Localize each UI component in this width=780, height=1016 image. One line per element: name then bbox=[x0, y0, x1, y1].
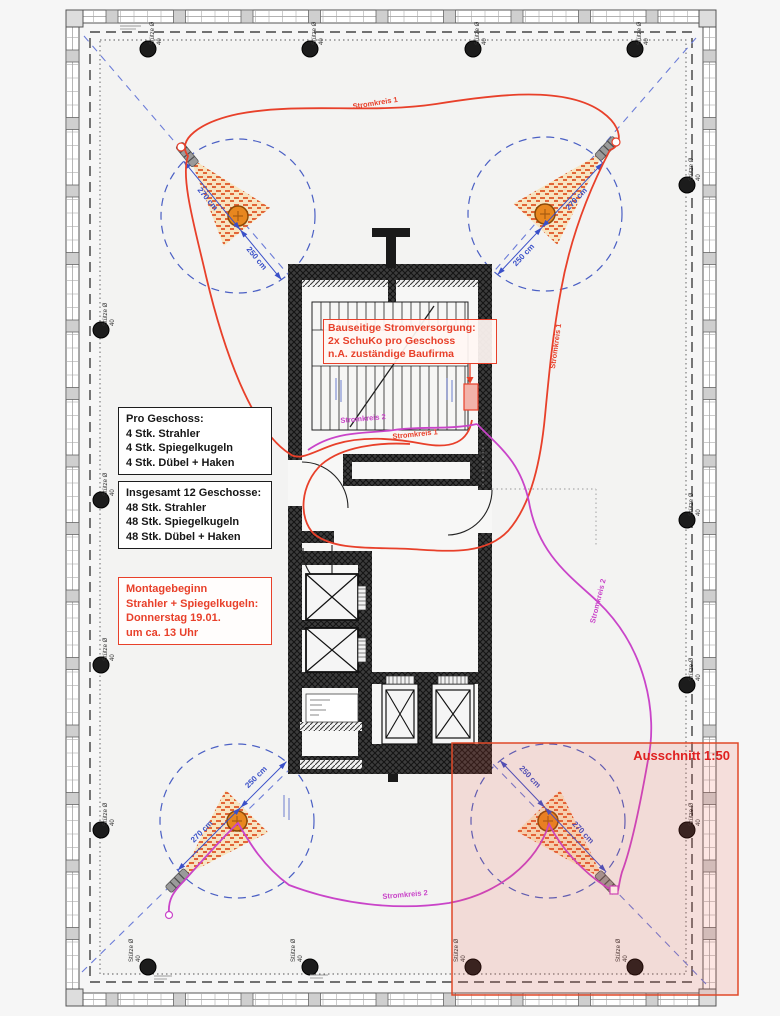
facade-corner bbox=[699, 10, 716, 27]
column-label: Stütze Ø bbox=[475, 21, 481, 45]
facade-corner bbox=[66, 989, 83, 1006]
facade-mullion bbox=[66, 455, 79, 467]
facade-mullion bbox=[703, 50, 716, 62]
facade-mullion bbox=[703, 253, 716, 265]
elevator-shaft bbox=[382, 684, 418, 744]
facade-mullion bbox=[66, 50, 79, 62]
facade-mullion bbox=[174, 10, 186, 23]
column-label: Stütze Ø bbox=[103, 802, 109, 826]
elevator-shaft bbox=[306, 574, 358, 620]
detail-view-overlay bbox=[452, 743, 738, 995]
per-floor-equipment-box: Pro Geschoss: 4 Stk. Strahler 4 Stk. Spi… bbox=[118, 407, 272, 475]
box-line: 48 Stk. Spiegelkugeln bbox=[126, 515, 264, 530]
facade-mullion bbox=[66, 523, 79, 535]
facade-mullion bbox=[703, 590, 716, 602]
facade-mullion bbox=[703, 185, 716, 197]
facade-mullion bbox=[66, 725, 79, 737]
note-line: n.A. zuständige Baufirma bbox=[328, 348, 492, 361]
facade-mullion bbox=[703, 658, 716, 670]
facade-mullion bbox=[241, 993, 253, 1006]
column-label: Stütze Ø bbox=[689, 657, 695, 681]
note-line: Bauseitige Stromversorgung: bbox=[328, 322, 492, 335]
core-stamp-box bbox=[306, 694, 358, 722]
column-label: 40 bbox=[136, 955, 142, 962]
facade-mullion bbox=[309, 10, 321, 23]
box-line: 4 Stk. Dübel + Haken bbox=[126, 456, 264, 471]
facade-mullion bbox=[703, 320, 716, 332]
column-label: 40 bbox=[110, 319, 116, 326]
total-equipment-box: Insgesamt 12 Geschosse: 48 Stk. Strahler… bbox=[118, 481, 272, 549]
box-line: 4 Stk. Strahler bbox=[126, 427, 264, 442]
facade-mullion bbox=[444, 10, 456, 23]
facade-mullion bbox=[66, 590, 79, 602]
column-label: Stütze Ø bbox=[150, 21, 156, 45]
column-label: 40 bbox=[110, 489, 116, 496]
facade-mullion bbox=[66, 253, 79, 265]
box-line: um ca. 13 Uhr bbox=[126, 626, 264, 641]
box-line: Montagebeginn bbox=[126, 582, 264, 597]
facade-corner bbox=[66, 10, 83, 27]
column-label: 40 bbox=[696, 174, 702, 181]
floor-plan-canvas: 270 cm250 cm270 cm250 cm270 cm250 cm270 … bbox=[0, 0, 780, 1016]
column-label: 40 bbox=[298, 955, 304, 962]
facade-mullion bbox=[376, 10, 388, 23]
montage-schedule-box: Montagebeginn Strahler + Spiegelkugeln: … bbox=[118, 577, 272, 645]
column-label: Stütze Ø bbox=[689, 492, 695, 516]
column-label: 40 bbox=[696, 674, 702, 681]
elevator-shaft bbox=[432, 684, 474, 744]
column-label: Stütze Ø bbox=[103, 302, 109, 326]
elevator-shaft bbox=[306, 628, 358, 672]
column-label: 40 bbox=[157, 38, 163, 45]
facade-mullion bbox=[66, 860, 79, 872]
column-label: Stütze Ø bbox=[312, 21, 318, 45]
facade-mullion bbox=[376, 993, 388, 1006]
facade-mullion bbox=[106, 993, 118, 1006]
facade-mullion bbox=[106, 10, 118, 23]
column-label: 40 bbox=[319, 38, 325, 45]
facade-mullion bbox=[703, 388, 716, 400]
column-label: Stütze Ø bbox=[689, 157, 695, 181]
facade-mullion bbox=[174, 993, 186, 1006]
cable-node bbox=[612, 138, 620, 146]
column-label: 40 bbox=[644, 38, 650, 45]
column-label: 40 bbox=[110, 819, 116, 826]
floor-plan-drawing: 270 cm250 cm270 cm250 cm270 cm250 cm270 … bbox=[0, 0, 780, 1016]
cable-node bbox=[166, 912, 173, 919]
box-line: Strahler + Spiegelkugeln: bbox=[126, 597, 264, 612]
box-line: 48 Stk. Dübel + Haken bbox=[126, 530, 264, 545]
facade-mullion bbox=[703, 523, 716, 535]
facade-mullion bbox=[511, 10, 523, 23]
facade-mullion bbox=[241, 10, 253, 23]
facade-mullion bbox=[66, 388, 79, 400]
box-line: 4 Stk. Spiegelkugeln bbox=[126, 441, 264, 456]
facade-mullion bbox=[66, 185, 79, 197]
facade-mullion bbox=[646, 10, 658, 23]
box-title: Pro Geschoss: bbox=[126, 412, 264, 427]
column-label: 40 bbox=[110, 654, 116, 661]
column-label: Stütze Ø bbox=[103, 472, 109, 496]
facade-mullion bbox=[66, 658, 79, 670]
column-label: Stütze Ø bbox=[129, 938, 135, 962]
column-label: Stütze Ø bbox=[291, 938, 297, 962]
schuko-socket bbox=[464, 384, 478, 410]
facade-mullion bbox=[703, 725, 716, 737]
column-label: 40 bbox=[482, 38, 488, 45]
facade-mullion bbox=[579, 10, 591, 23]
box-title: Insgesamt 12 Geschosse: bbox=[126, 486, 264, 501]
cable-node bbox=[177, 143, 185, 151]
power-supply-note: Bauseitige Stromversorgung: 2x SchuKo pr… bbox=[323, 319, 497, 364]
facade-mullion bbox=[66, 320, 79, 332]
facade-mullion bbox=[66, 118, 79, 130]
facade-mullion bbox=[309, 993, 321, 1006]
facade-mullion bbox=[66, 928, 79, 940]
note-line: 2x SchuKo pro Geschoss bbox=[328, 335, 492, 348]
facade-mullion bbox=[66, 793, 79, 805]
column-label: Stütze Ø bbox=[103, 637, 109, 661]
box-line: 48 Stk. Strahler bbox=[126, 501, 264, 516]
column-label: 40 bbox=[696, 509, 702, 516]
detail-view-label: Ausschnitt 1:50 bbox=[560, 748, 730, 763]
column-label: Stütze Ø bbox=[637, 21, 643, 45]
wall-stub bbox=[386, 232, 396, 268]
facade-mullion bbox=[703, 118, 716, 130]
facade-mullion bbox=[703, 455, 716, 467]
box-line: Donnerstag 19.01. bbox=[126, 611, 264, 626]
